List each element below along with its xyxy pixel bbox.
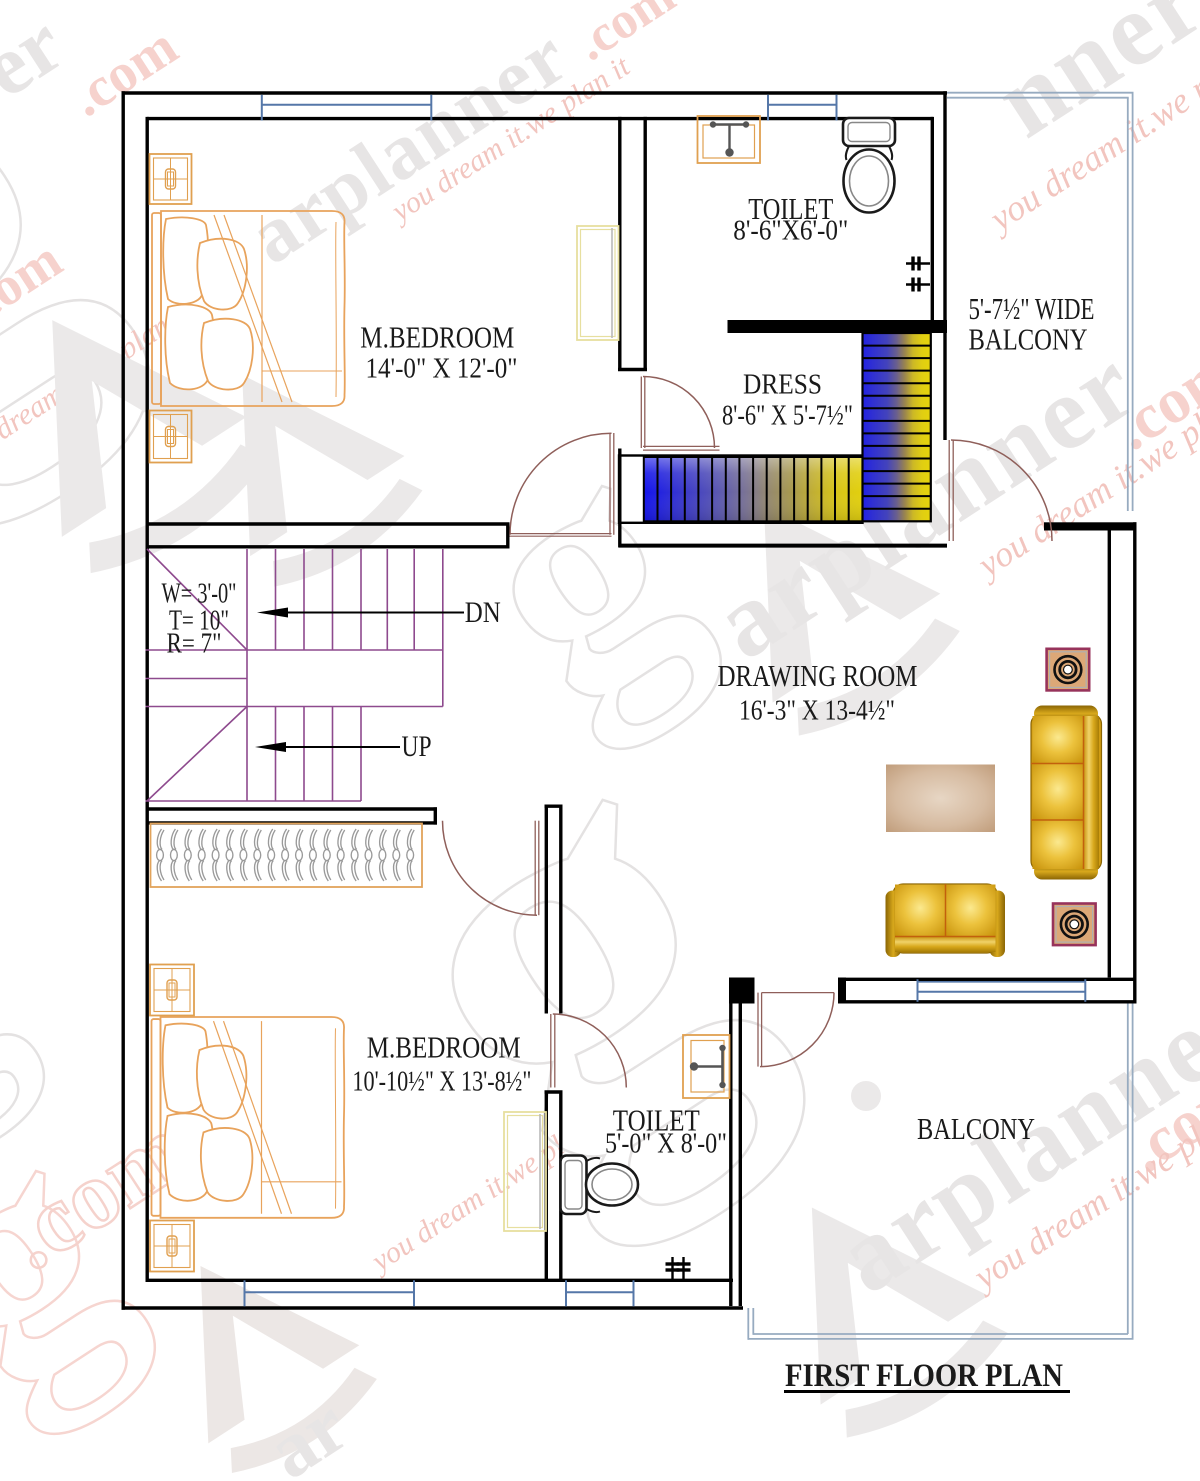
svg-text:BALCONY: BALCONY <box>969 321 1088 356</box>
svg-text:14'-0" X 12'-0": 14'-0" X 12'-0" <box>366 354 518 385</box>
svg-text:M.BEDROOM: M.BEDROOM <box>367 1029 521 1064</box>
svg-text:M.BEDROOM: M.BEDROOM <box>360 320 514 355</box>
svg-text:DRESS: DRESS <box>743 369 822 401</box>
svg-text:BALCONY: BALCONY <box>917 1111 1035 1146</box>
svg-text:FIRST FLOOR PLAN: FIRST FLOOR PLAN <box>785 1358 1063 1394</box>
svg-text:8'-6"X6'-0": 8'-6"X6'-0" <box>733 216 848 247</box>
svg-text:16'-3" X 13-4½": 16'-3" X 13-4½" <box>739 696 895 727</box>
svg-text:R= 7": R= 7" <box>167 628 222 660</box>
svg-text:arplanner: arplanner <box>234 11 584 281</box>
svg-text:DN: DN <box>465 596 501 629</box>
svg-text:er: er <box>0 0 80 116</box>
svg-text:.com: .com <box>565 0 684 72</box>
svg-text:DRAWING ROOM: DRAWING ROOM <box>718 658 918 693</box>
svg-text:10'-10½" X 13'-8½": 10'-10½" X 13'-8½" <box>352 1067 531 1098</box>
svg-text:5'-0" X 8'-0": 5'-0" X 8'-0" <box>605 1129 727 1160</box>
svg-text:UP: UP <box>402 730 432 763</box>
svg-text:nner: nner <box>975 0 1200 159</box>
svg-text:8'-6" X 5'-7½": 8'-6" X 5'-7½" <box>722 401 853 432</box>
